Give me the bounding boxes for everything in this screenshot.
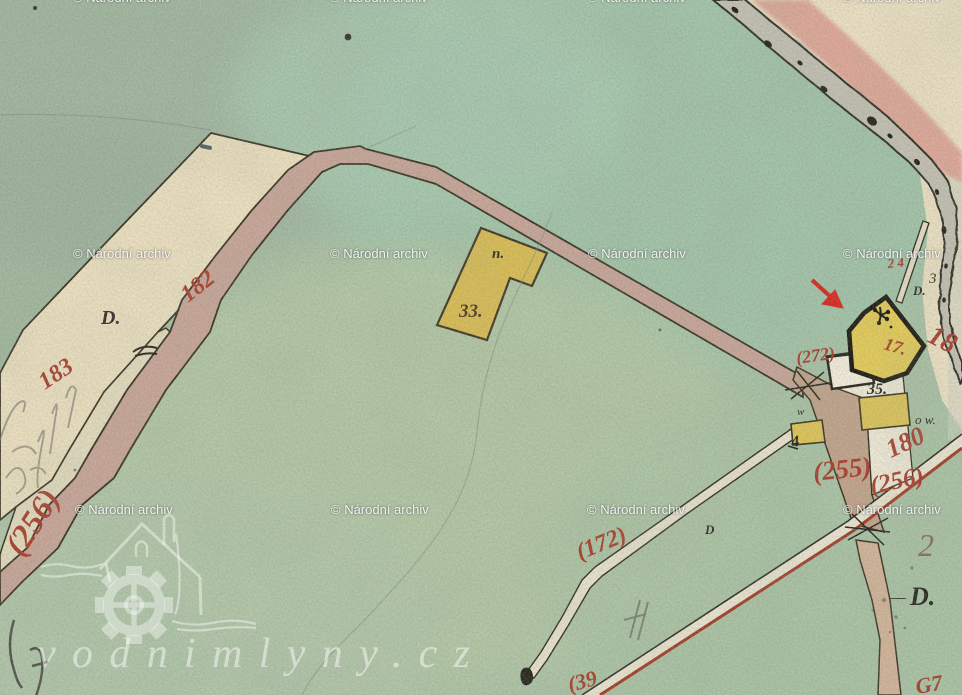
svg-text:vodnimlyny.cz: vodnimlyny.cz [37,631,470,677]
